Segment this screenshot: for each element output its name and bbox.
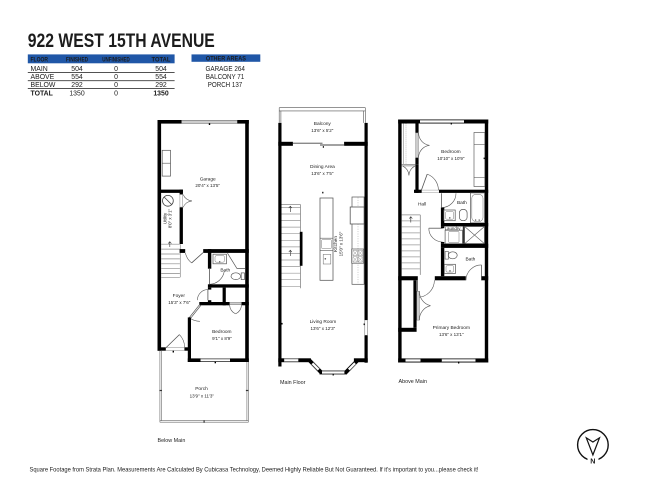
svg-text:15'0" x 13'6": 15'0" x 13'6" xyxy=(339,231,344,256)
svg-text:UNFINISHED: UNFINISHED xyxy=(102,57,130,64)
svg-text:0: 0 xyxy=(114,91,118,98)
svg-text:Foyer: Foyer xyxy=(173,293,186,299)
svg-text:BELOW: BELOW xyxy=(31,82,56,89)
svg-text:Square Footage from Strata Pla: Square Footage from Strata Plan. Measure… xyxy=(30,468,479,474)
svg-text:20'4" x 13'5": 20'4" x 13'5" xyxy=(195,183,220,188)
svg-text:922 WEST 15TH AVENUE: 922 WEST 15TH AVENUE xyxy=(28,31,215,52)
svg-text:MAIN: MAIN xyxy=(31,66,48,73)
svg-text:15'3" x 7'6": 15'3" x 7'6" xyxy=(168,300,191,305)
svg-text:Balcony: Balcony xyxy=(314,121,332,127)
svg-text:Bath: Bath xyxy=(220,267,230,273)
svg-text:13'6" x 12'3": 13'6" x 12'3" xyxy=(311,326,336,331)
svg-text:Hall: Hall xyxy=(418,202,426,208)
svg-text:TOTAL: TOTAL xyxy=(31,91,53,98)
svg-text:Bedroom: Bedroom xyxy=(212,329,231,335)
svg-text:Bedroom: Bedroom xyxy=(441,149,460,155)
svg-text:0: 0 xyxy=(114,82,118,89)
svg-text:PORCH 137: PORCH 137 xyxy=(208,82,243,89)
svg-text:554: 554 xyxy=(155,74,167,81)
svg-text:ABOVE: ABOVE xyxy=(31,74,55,81)
svg-text:1350: 1350 xyxy=(69,91,84,98)
svg-text:13'9" x 11'3": 13'9" x 11'3" xyxy=(190,393,215,398)
svg-text:13'6" x 5'2": 13'6" x 5'2" xyxy=(311,128,334,133)
svg-text:9'1" x 8'9": 9'1" x 8'9" xyxy=(212,336,232,341)
svg-text:Dining Area: Dining Area xyxy=(310,164,335,170)
svg-text:N: N xyxy=(590,457,595,466)
svg-text:Garage: Garage xyxy=(200,176,216,182)
svg-text:TOTAL: TOTAL xyxy=(152,57,171,64)
svg-text:Bath: Bath xyxy=(465,256,475,262)
svg-text:Porch: Porch xyxy=(195,386,208,392)
svg-text:Bath: Bath xyxy=(457,200,467,206)
svg-text:13'6" x 13'1": 13'6" x 13'1" xyxy=(439,332,464,337)
svg-text:Above Main: Above Main xyxy=(399,379,427,385)
svg-text:Below Main: Below Main xyxy=(158,438,186,444)
svg-text:1350: 1350 xyxy=(153,91,168,98)
svg-text:Primary Bedroom: Primary Bedroom xyxy=(433,325,470,331)
svg-text:292: 292 xyxy=(71,82,83,89)
svg-text:554: 554 xyxy=(71,74,83,81)
svg-text:504: 504 xyxy=(155,66,167,73)
svg-text:13'6" x 7'5": 13'6" x 7'5" xyxy=(311,171,334,176)
svg-text:FINISHED: FINISHED xyxy=(66,57,88,64)
svg-text:0: 0 xyxy=(114,66,118,73)
svg-text:504: 504 xyxy=(71,66,83,73)
svg-text:0: 0 xyxy=(114,74,118,81)
svg-text:GARAGE 264: GARAGE 264 xyxy=(205,66,245,73)
svg-text:OTHER AREAS: OTHER AREAS xyxy=(206,55,246,62)
svg-text:Living Room: Living Room xyxy=(310,319,337,325)
svg-text:Main Floor: Main Floor xyxy=(280,380,306,386)
svg-text:FLOOR: FLOOR xyxy=(31,57,49,64)
svg-text:8'0" x 3'1": 8'0" x 3'1" xyxy=(168,208,173,228)
svg-text:10'10" x 10'9": 10'10" x 10'9" xyxy=(437,156,465,161)
svg-text:BALCONY 71: BALCONY 71 xyxy=(206,74,245,81)
svg-text:292: 292 xyxy=(155,82,167,89)
